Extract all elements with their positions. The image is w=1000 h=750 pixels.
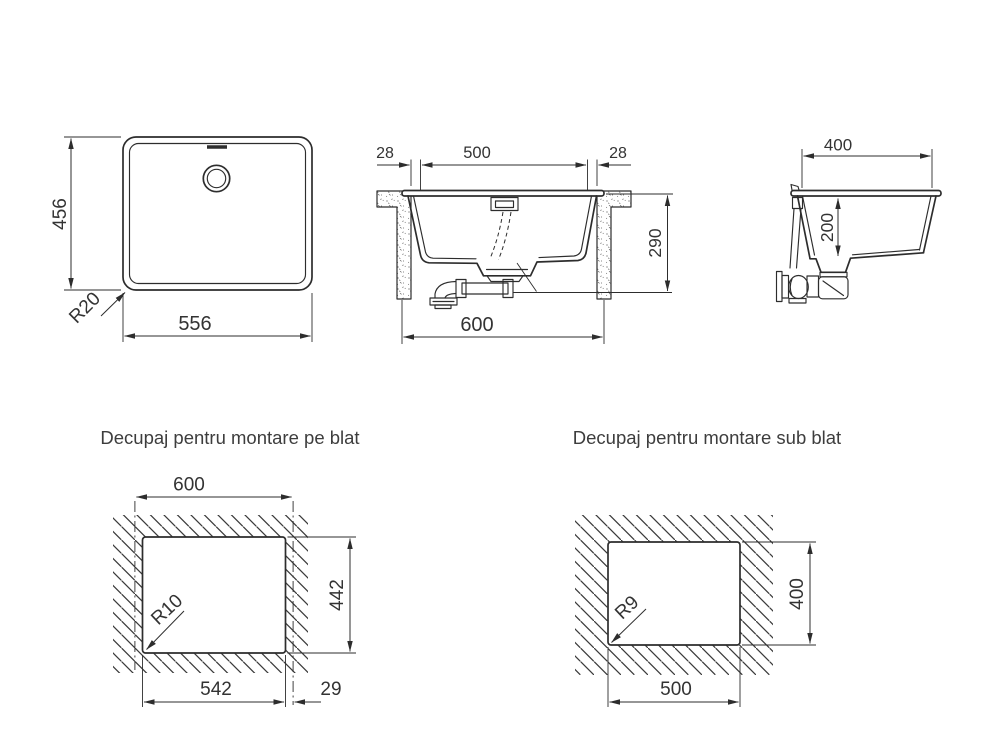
dim-overall-600: 600 [402, 300, 604, 344]
title-topmount: Decupaj pentru montare pe blat [100, 427, 359, 448]
dim-side-offset-29: 29 [295, 679, 342, 702]
countertop-left [377, 191, 411, 299]
basin-bottom [810, 253, 924, 272]
dim-width-556: 556 [123, 293, 312, 342]
leader-line [101, 293, 125, 317]
dim-sink-width-600: 600 [136, 475, 291, 498]
sink-outline [123, 137, 312, 290]
dim-front-left-edge: 28 [376, 145, 394, 162]
front-section-view: 28 500 28 290 600 [376, 144, 673, 344]
undermount-cutout-view: Decupaj pentru montare sub blat 400 500 … [573, 427, 841, 707]
basin-inner-left [414, 196, 477, 259]
drain-trap [430, 263, 537, 309]
dim-front-right-edge: 28 [609, 145, 627, 162]
dim-topmount-offset: 29 [320, 679, 341, 700]
dim-plan-height: 456 [50, 198, 71, 230]
topmount-cutout-view: Decupaj pentru montare pe blat 600 442 5… [100, 427, 359, 707]
basin-wall-left-inner [803, 196, 815, 255]
label-undermount-radius: R9 [611, 592, 643, 624]
basin-inner-right [539, 196, 592, 258]
dim-front-overall-width: 600 [460, 314, 493, 336]
radius-callout-r10: R10 [147, 590, 188, 649]
radius-callout-r20: R20 [65, 288, 125, 327]
dim-topmount-height: 442 [327, 579, 348, 611]
overflow-opening-inner [496, 201, 514, 208]
label-plan-radius: R20 [65, 288, 104, 327]
sink-rim [402, 191, 604, 197]
dim-height-456: 456 [50, 137, 121, 290]
dim-depth-200: 200 [817, 199, 838, 257]
sink-rim-side [791, 191, 941, 197]
diagram-canvas: 456 556 R20 [0, 0, 1000, 750]
dim-front-height: 290 [645, 228, 665, 257]
dim-top-edges: 28 500 28 [376, 144, 631, 191]
worktop-hatch-area [575, 515, 773, 675]
dim-front-bowl-width: 500 [463, 144, 491, 162]
drain-trap-side [777, 272, 849, 304]
overflow-inlet-fitting [791, 185, 799, 191]
title-undermount: Decupaj pentru montare sub blat [573, 427, 841, 448]
countertop-right [597, 191, 631, 299]
drawing-sheet: 456 556 R20 [0, 0, 1000, 750]
cutout-rect [143, 537, 286, 653]
trap-diagonal-line [517, 263, 537, 292]
dim-undermount-width: 500 [660, 679, 692, 700]
overflow-channel-hidden-line [491, 212, 504, 258]
radius-callout-r9: R9 [611, 592, 646, 642]
dim-height-290: 290 [513, 194, 673, 293]
dim-plan-width: 556 [178, 313, 211, 335]
plan-view: 456 556 R20 [50, 137, 312, 342]
dim-length-400: 400 [802, 136, 932, 189]
dim-side-length: 400 [824, 136, 852, 155]
side-section-view: 400 200 [777, 136, 942, 304]
dim-undermount-height: 400 [787, 578, 808, 610]
dim-topmount-cut-width: 542 [200, 679, 232, 700]
overflow-pipe [790, 198, 803, 269]
dim-side-depth: 200 [817, 213, 837, 242]
label-topmount-radius: R10 [147, 590, 187, 629]
drain-circle-inner [207, 169, 225, 187]
overflow-channel-hidden-line [499, 212, 512, 260]
dim-topmount-width: 600 [173, 475, 205, 496]
